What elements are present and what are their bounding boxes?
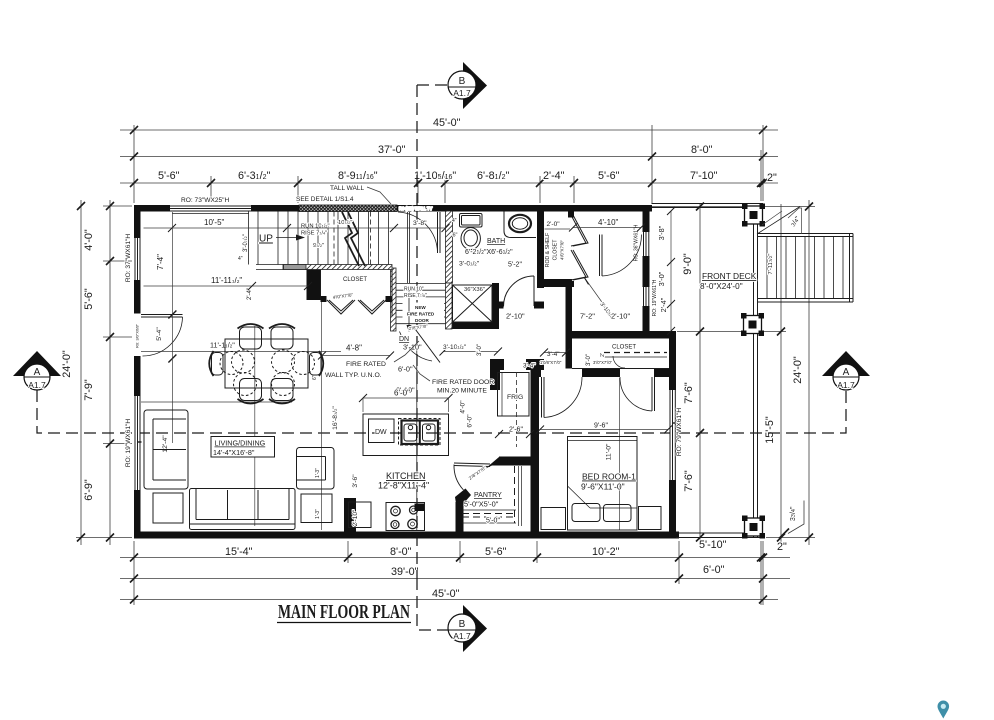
svg-text:3'-0": 3'-0" bbox=[477, 344, 483, 356]
svg-text:3'-0": 3'-0" bbox=[586, 354, 592, 366]
svg-text:3'-01/2": 3'-01/2" bbox=[243, 234, 249, 252]
svg-text:2'-10": 2'-10" bbox=[611, 312, 630, 321]
svg-text:CLOSET: CLOSET bbox=[553, 239, 559, 261]
svg-text:5'-4": 5'-4" bbox=[156, 327, 163, 341]
svg-text:LIVING/DINING: LIVING/DINING bbox=[215, 439, 266, 448]
svg-text:16'-81/2": 16'-81/2" bbox=[332, 406, 339, 430]
svg-text:15'-4": 15'-4" bbox=[225, 546, 253, 558]
svg-text:33/4": 33/4" bbox=[790, 506, 797, 521]
svg-text:B: B bbox=[459, 76, 466, 87]
svg-text:91/2": 91/2" bbox=[313, 243, 324, 249]
svg-text:6'-0": 6'-0" bbox=[467, 414, 474, 428]
svg-text:3'/0"X7'/0": 3'/0"X7'/0" bbox=[593, 360, 613, 365]
svg-text:A1.7: A1.7 bbox=[453, 631, 471, 641]
svg-text:10'-2": 10'-2" bbox=[592, 546, 620, 558]
svg-text:RO: 73"WX25"H: RO: 73"WX25"H bbox=[181, 197, 230, 204]
svg-text:4": 4" bbox=[238, 256, 243, 262]
svg-text:9'-0": 9'-0" bbox=[682, 253, 694, 275]
svg-text:1'-3": 1'-3" bbox=[315, 509, 321, 519]
svg-text:3'-4": 3'-4" bbox=[523, 363, 536, 370]
svg-text:A: A bbox=[843, 367, 850, 378]
svg-text:2'-4": 2'-4" bbox=[659, 297, 668, 312]
svg-text:5'-10": 5'-10" bbox=[699, 539, 727, 551]
svg-text:5'-0"X5'-0": 5'-0"X5'-0" bbox=[464, 500, 499, 509]
svg-text:15'-5": 15'-5" bbox=[764, 416, 776, 444]
svg-text:RO: 19"WX61"H: RO: 19"WX61"H bbox=[125, 419, 132, 468]
svg-text:5'-6": 5'-6" bbox=[83, 288, 95, 310]
svg-text:UP: UP bbox=[259, 234, 273, 245]
svg-text:7'-4": 7'-4" bbox=[156, 254, 165, 270]
svg-text:7'-10": 7'-10" bbox=[690, 170, 718, 182]
svg-text:B: B bbox=[459, 619, 466, 630]
svg-text:3'-0": 3'-0" bbox=[657, 271, 666, 286]
svg-text:4'-8": 4'-8" bbox=[346, 344, 362, 353]
svg-text:FIRE RATED DOOR: FIRE RATED DOOR bbox=[432, 379, 494, 386]
svg-text:6'-21/2"X6'-61/2": 6'-21/2"X6'-61/2" bbox=[465, 249, 513, 256]
svg-text:BATH: BATH bbox=[487, 238, 505, 245]
svg-text:3'-8": 3'-8" bbox=[657, 225, 666, 240]
svg-text:KITCHEN: KITCHEN bbox=[386, 471, 426, 481]
svg-text:CLOSET: CLOSET bbox=[343, 277, 367, 283]
svg-text:7'-2": 7'-2" bbox=[580, 312, 595, 321]
svg-text:2'-0": 2'-0" bbox=[547, 221, 561, 228]
svg-text:37'-0": 37'-0" bbox=[378, 144, 406, 156]
svg-text:3'-01/2": 3'-01/2" bbox=[459, 261, 480, 268]
svg-text:NEW: NEW bbox=[415, 305, 426, 310]
svg-text:2'-10": 2'-10" bbox=[506, 312, 525, 321]
svg-text:FRIG: FRIG bbox=[507, 394, 523, 401]
svg-text:5'-6": 5'-6" bbox=[485, 546, 507, 558]
svg-text:14'-4"X16'-8": 14'-4"X16'-8" bbox=[213, 448, 255, 457]
svg-text:5'-2": 5'-2" bbox=[508, 262, 522, 269]
svg-text:3'-101/2": 3'-101/2" bbox=[443, 344, 467, 351]
svg-text:2": 2" bbox=[767, 172, 777, 184]
svg-text:7'-9": 7'-9" bbox=[83, 379, 95, 401]
svg-text:5'-6": 5'-6" bbox=[598, 170, 620, 182]
svg-text:1'0/8"X7'/0": 1'0/8"X7'/0" bbox=[540, 360, 562, 365]
svg-text:10'-5": 10'-5" bbox=[204, 218, 225, 227]
svg-text:7'-6": 7'-6" bbox=[683, 470, 695, 492]
svg-text:6'-31/2": 6'-31/2" bbox=[238, 170, 270, 182]
svg-text:39'-0": 39'-0" bbox=[391, 566, 419, 578]
svg-text:FIRE RATED: FIRE RATED bbox=[346, 361, 386, 368]
svg-text:2'-6": 2'-6" bbox=[509, 427, 523, 434]
svg-text:ROD & SHELF: ROD & SHELF bbox=[545, 233, 551, 268]
svg-text:2'-10": 2'-10" bbox=[352, 509, 359, 526]
svg-text:A1.7: A1.7 bbox=[837, 380, 855, 390]
svg-text:CLOSET: CLOSET bbox=[612, 345, 636, 351]
svg-text:8'-0": 8'-0" bbox=[691, 144, 713, 156]
svg-text:45'-0": 45'-0" bbox=[433, 117, 461, 129]
svg-text:MAIN FLOOR PLAN: MAIN FLOOR PLAN bbox=[278, 601, 410, 623]
svg-text:A1.7: A1.7 bbox=[453, 88, 471, 98]
svg-text:MIN.20 MINUTE: MIN.20 MINUTE bbox=[437, 388, 487, 395]
svg-text:36"X36": 36"X36" bbox=[464, 287, 485, 293]
svg-text:11'-11/2": 11'-11/2" bbox=[210, 341, 235, 350]
svg-text:24'-0": 24'-0" bbox=[61, 350, 73, 378]
svg-text:2': 2' bbox=[600, 353, 606, 357]
svg-text:DOOR: DOOR bbox=[415, 318, 429, 323]
svg-text:5'-0": 5'-0" bbox=[486, 518, 500, 525]
svg-text:6'-0": 6'-0" bbox=[394, 389, 410, 398]
svg-text:SEE DETAIL 1/S1.4: SEE DETAIL 1/S1.4 bbox=[296, 196, 354, 203]
svg-text:3'-8": 3'-8" bbox=[413, 220, 427, 227]
svg-text:2'-4": 2'-4" bbox=[543, 170, 565, 182]
svg-text:4'-0": 4'-0" bbox=[460, 400, 467, 414]
svg-text:RO: 37"WX61"H: RO: 37"WX61"H bbox=[125, 234, 132, 283]
svg-text:6": 6" bbox=[312, 375, 318, 380]
svg-text:9'-6": 9'-6" bbox=[594, 423, 608, 430]
svg-text:7'-6": 7'-6" bbox=[683, 382, 695, 404]
svg-text:6'-81/2": 6'-81/2" bbox=[477, 170, 509, 182]
svg-text:R0 (3D) WALL TY: R0 (3D) WALL TY bbox=[399, 206, 433, 211]
svg-text:WALL TYP. U.N.O.: WALL TYP. U.N.O. bbox=[325, 372, 382, 379]
svg-text:RUN 10": RUN 10" bbox=[404, 287, 424, 293]
svg-text:RUN 101/2": RUN 101/2" bbox=[301, 224, 330, 230]
svg-text:5'-6": 5'-6" bbox=[158, 170, 180, 182]
svg-text:R0: 3/0"X6/8": R0: 3/0"X6/8" bbox=[135, 323, 140, 348]
svg-text:2": 2" bbox=[777, 541, 787, 553]
svg-text:8'-0": 8'-0" bbox=[390, 546, 412, 558]
svg-text:PANTRY: PANTRY bbox=[474, 492, 502, 499]
svg-text:12'-8"X11'-4": 12'-8"X11'-4" bbox=[378, 481, 429, 491]
svg-text:FIRE RATED: FIRE RATED bbox=[407, 312, 435, 317]
svg-text:6'-0": 6'-0" bbox=[398, 365, 413, 374]
svg-text:FRONT DECK: FRONT DECK bbox=[702, 271, 757, 281]
svg-text:DW: DW bbox=[375, 429, 387, 436]
svg-text:BED ROOM-1: BED ROOM-1 bbox=[582, 472, 636, 482]
svg-text:24'-0": 24'-0" bbox=[792, 356, 804, 384]
svg-text:4'/0"X7'/0": 4'/0"X7'/0" bbox=[560, 240, 565, 260]
svg-text:45'-0": 45'-0" bbox=[432, 588, 460, 600]
svg-text:4'-0": 4'-0" bbox=[83, 229, 95, 251]
svg-text:4": 4" bbox=[452, 218, 457, 224]
svg-text:4'-10": 4'-10" bbox=[598, 218, 619, 227]
svg-text:8'-0"X24'-0": 8'-0"X24'-0" bbox=[700, 282, 743, 291]
svg-text:3'-6": 3'-6" bbox=[352, 474, 359, 488]
svg-text:6'-0": 6'-0" bbox=[703, 564, 725, 576]
svg-text:11'-0": 11'-0" bbox=[606, 443, 613, 460]
svg-text:A1.7: A1.7 bbox=[28, 380, 46, 390]
svg-text:A: A bbox=[34, 367, 41, 378]
svg-text:RO: 79"WX61"H: RO: 79"WX61"H bbox=[676, 408, 683, 457]
svg-text:6'-9": 6'-9" bbox=[83, 479, 95, 501]
svg-text:TALL WALL: TALL WALL bbox=[330, 185, 364, 192]
svg-text:3'-4": 3'-4" bbox=[547, 351, 560, 358]
svg-text:1'-3": 1'-3" bbox=[315, 468, 321, 478]
svg-text:6": 6" bbox=[453, 233, 458, 239]
svg-text:9'-6"X11'-0": 9'-6"X11'-0" bbox=[581, 482, 625, 492]
